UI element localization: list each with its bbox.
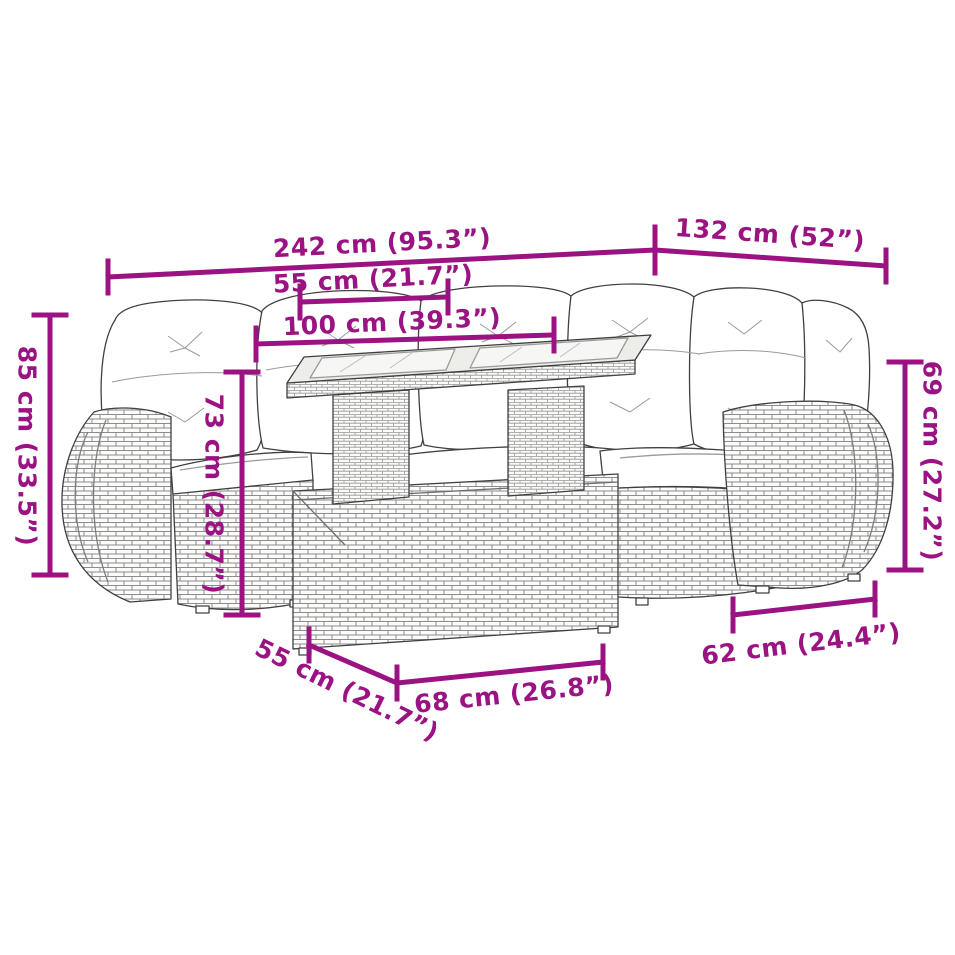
product-dimension-diagram: 242 cm (95.3”) 132 cm (52”) 55 cm (21.7”…: [0, 0, 955, 955]
table-column-left: [333, 390, 409, 504]
table-column-right: [508, 386, 584, 496]
furniture-line-art: [0, 0, 955, 955]
dimension-label-right-height: 69 cm (27.2”): [918, 361, 947, 562]
dimension-label-table-height: 73 cm (28.7”): [200, 394, 229, 595]
dim-line-right-width: [655, 250, 886, 282]
dim-line-right-height: [889, 362, 921, 570]
armrest-right: [723, 401, 893, 588]
dimension-label-back-height: 85 cm (33.5”): [13, 346, 42, 547]
armrest-left: [62, 408, 171, 602]
